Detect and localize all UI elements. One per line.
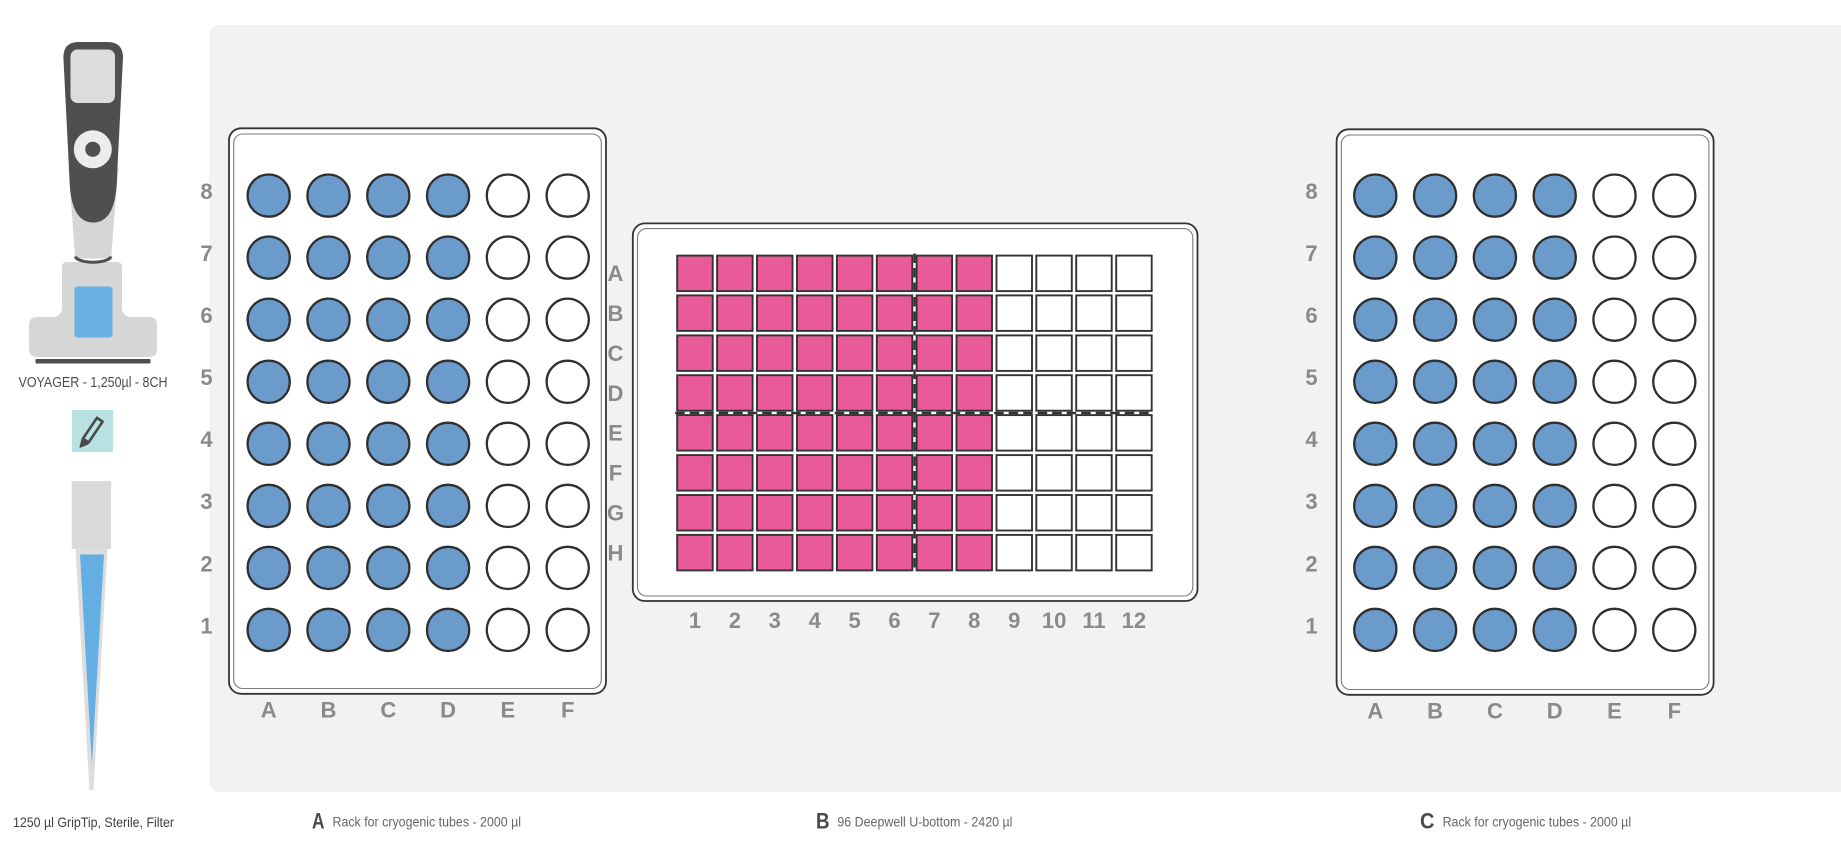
- svg-text:1250 µl GripTip, Sterile, Filt: 1250 µl GripTip, Sterile, Filter: [13, 814, 174, 830]
- svg-text:7: 7: [928, 608, 940, 633]
- svg-text:A: A: [312, 809, 325, 834]
- svg-text:2: 2: [200, 551, 212, 576]
- svg-text:B: B: [321, 698, 337, 723]
- svg-text:B: B: [816, 809, 830, 834]
- svg-text:F: F: [1668, 699, 1681, 724]
- svg-text:VOYAGER - 1,250µl - 8CH: VOYAGER - 1,250µl - 8CH: [19, 374, 168, 391]
- svg-text:11: 11: [1082, 608, 1105, 633]
- svg-text:F: F: [561, 698, 574, 723]
- svg-text:6: 6: [1305, 303, 1317, 328]
- svg-text:9: 9: [1008, 608, 1020, 633]
- svg-text:2: 2: [729, 608, 741, 633]
- svg-text:C: C: [608, 341, 624, 366]
- svg-text:2: 2: [1305, 551, 1317, 576]
- svg-text:7: 7: [1305, 241, 1317, 266]
- svg-text:8: 8: [968, 608, 980, 633]
- svg-text:96 Deepwell U-bottom - 2420 µl: 96 Deepwell U-bottom - 2420 µl: [837, 814, 1012, 830]
- svg-text:A: A: [1367, 699, 1383, 724]
- svg-text:B: B: [608, 301, 624, 326]
- svg-text:5: 5: [848, 608, 860, 633]
- svg-text:A: A: [261, 698, 277, 723]
- svg-text:4: 4: [200, 427, 213, 452]
- svg-text:A: A: [608, 261, 624, 286]
- svg-text:D: D: [440, 698, 456, 723]
- svg-text:D: D: [1547, 699, 1563, 724]
- svg-text:G: G: [607, 501, 624, 526]
- svg-text:C: C: [1487, 699, 1503, 724]
- svg-text:F: F: [609, 461, 622, 486]
- svg-text:4: 4: [1305, 427, 1318, 452]
- svg-text:E: E: [1607, 699, 1622, 724]
- svg-text:3: 3: [200, 489, 212, 514]
- svg-text:1: 1: [689, 608, 701, 633]
- svg-text:1: 1: [1305, 613, 1317, 638]
- svg-text:D: D: [608, 381, 624, 406]
- svg-text:5: 5: [200, 365, 212, 390]
- svg-text:C: C: [380, 698, 396, 723]
- svg-text:7: 7: [200, 241, 212, 266]
- svg-text:6: 6: [888, 608, 900, 633]
- svg-text:8: 8: [1305, 179, 1317, 204]
- svg-text:6: 6: [200, 303, 212, 328]
- svg-text:H: H: [608, 540, 624, 565]
- svg-text:Rack for cryogenic tubes - 200: Rack for cryogenic tubes - 2000 µl: [333, 814, 522, 830]
- svg-text:E: E: [608, 421, 623, 446]
- svg-text:Rack for cryogenic tubes - 200: Rack for cryogenic tubes - 2000 µl: [1443, 814, 1632, 830]
- svg-text:8: 8: [200, 179, 212, 204]
- svg-text:4: 4: [809, 608, 822, 633]
- svg-text:5: 5: [1305, 365, 1317, 390]
- svg-text:E: E: [501, 698, 516, 723]
- svg-text:1: 1: [200, 613, 212, 638]
- svg-text:12: 12: [1122, 608, 1146, 633]
- svg-text:3: 3: [769, 608, 781, 633]
- svg-text:10: 10: [1042, 608, 1066, 633]
- svg-text:B: B: [1427, 699, 1443, 724]
- svg-text:C: C: [1420, 809, 1435, 834]
- svg-text:3: 3: [1305, 489, 1317, 514]
